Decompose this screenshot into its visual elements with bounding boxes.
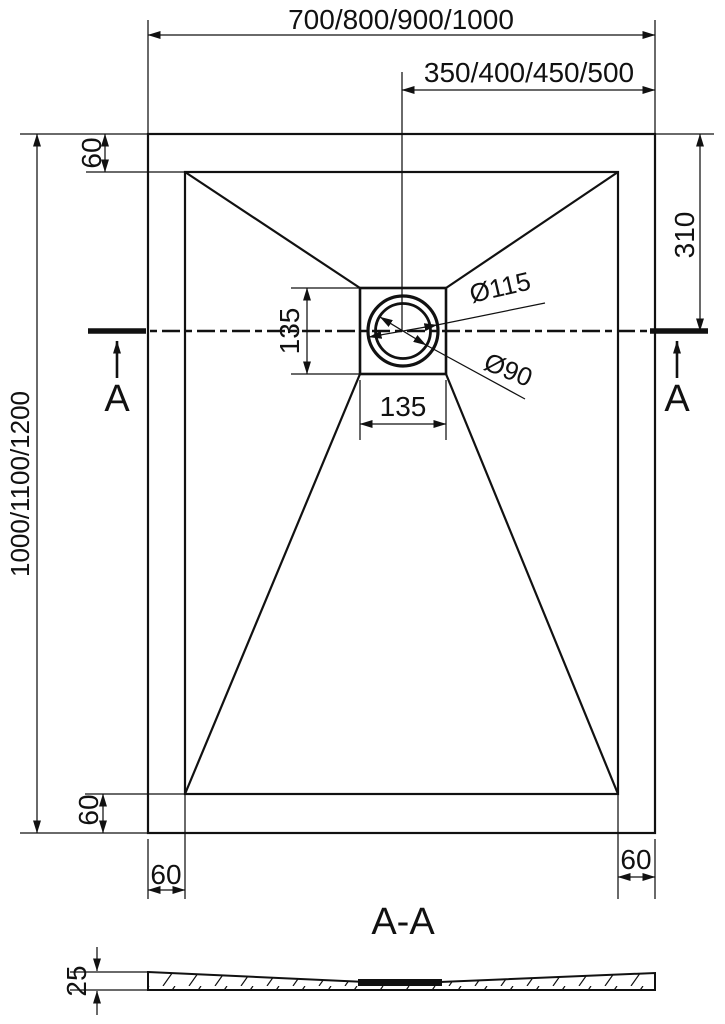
dim-text-drain-offset: 310 <box>669 212 700 259</box>
dim-inset-bottom: 60 <box>73 794 185 833</box>
dim-text-dia-outer: Ø115 <box>467 266 534 309</box>
dim-drain-offset: 310 <box>655 134 714 331</box>
slope-diagonal-top-left <box>185 172 360 288</box>
dim-drain-box-horizontal: 135 <box>360 380 446 440</box>
dim-height-overall: 1000/1100/1200 <box>5 134 148 833</box>
slope-diagonal-bottom-left <box>185 374 360 794</box>
dim-inset-bottom-left: 60 <box>148 794 185 899</box>
dim-inset-top: 60 <box>76 134 185 172</box>
section-drain-insert <box>358 979 442 986</box>
plan-view <box>92 72 710 833</box>
dim-width-center: 350/400/450/500 <box>402 57 655 90</box>
dim-text-width-center: 350/400/450/500 <box>424 57 634 88</box>
dim-text-drain-box-width: 135 <box>380 391 427 422</box>
dim-inset-bottom-right: 60 <box>618 794 655 899</box>
dim-text-height-overall: 1000/1100/1200 <box>5 391 35 577</box>
shower-tray-drawing: A A 700/800/900/1000 350/400/450/500 100… <box>0 0 725 1024</box>
dim-text-inset-bottom-left: 60 <box>150 859 181 890</box>
dim-text-thickness: 25 <box>61 965 92 996</box>
dim-text-drain-box-height: 135 <box>274 308 305 355</box>
section-title: A-A <box>371 901 435 943</box>
section-view: A-A 25 <box>61 901 655 1015</box>
slope-diagonal-bottom-right <box>446 374 618 794</box>
leader-line <box>437 303 545 325</box>
section-label-left: A <box>104 378 130 420</box>
slope-diagonal-top-right <box>446 172 618 288</box>
dim-text-inset-top: 60 <box>76 137 107 168</box>
technical-drawing-page: A A 700/800/900/1000 350/400/450/500 100… <box>0 0 725 1024</box>
dim-text-inset-bottom: 60 <box>73 794 104 825</box>
dim-text-dia-inner: Ø90 <box>480 347 537 393</box>
dim-text-inset-bottom-right: 60 <box>620 844 651 875</box>
section-label-right: A <box>664 378 690 420</box>
dim-text-width-overall: 700/800/900/1000 <box>288 4 514 35</box>
